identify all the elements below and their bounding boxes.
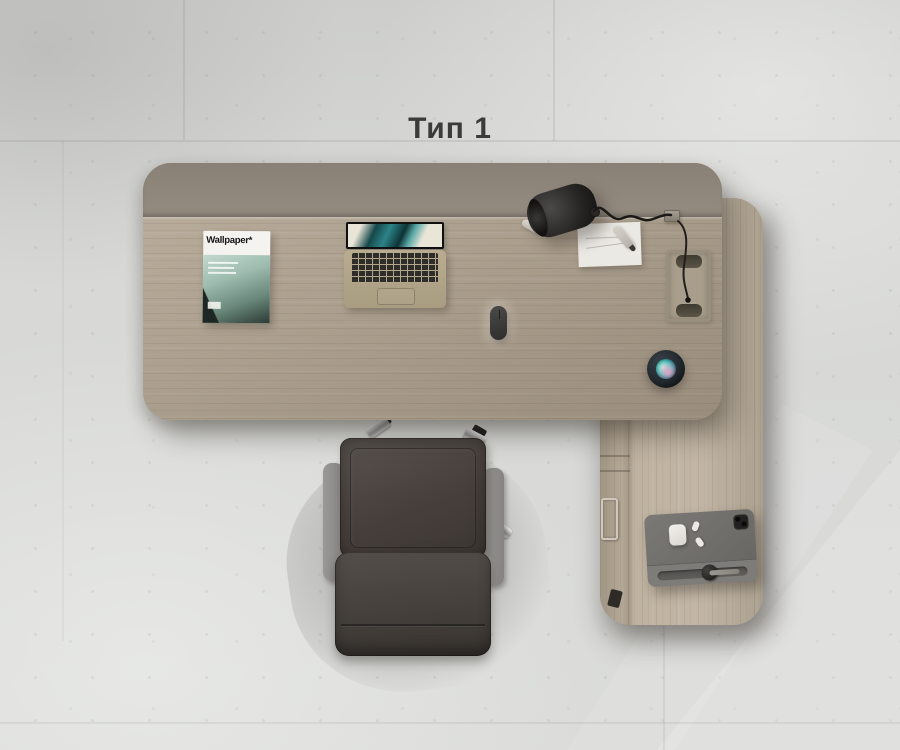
cover-text-line [208, 267, 234, 269]
airpods-case [669, 524, 687, 546]
smart-speaker [647, 350, 685, 388]
tablet-with-keyboard [644, 509, 758, 588]
magazine: Wallpaper* [203, 231, 271, 324]
airpod-bud [694, 536, 705, 548]
lamp-hub [590, 207, 600, 217]
drawer-seam [600, 455, 630, 457]
product-render-scene: Тип 1 [0, 0, 900, 750]
laptop-screen [346, 222, 444, 249]
cabinet-leg-notch [607, 589, 623, 608]
magazine-cover-image [203, 255, 271, 324]
laptop-keyboard [352, 253, 438, 283]
speaker-glow [656, 359, 676, 379]
drawer-seam [600, 470, 630, 472]
laptop-trackpad [377, 288, 415, 305]
drawer-handle [601, 498, 618, 540]
cover-badge [208, 302, 221, 309]
office-chair [318, 418, 513, 658]
apple-pencil [709, 569, 739, 576]
pencil-groove [657, 566, 747, 580]
magazine-masthead: Wallpaper* [206, 235, 267, 247]
airpod-bud [691, 521, 700, 532]
panel-edge [143, 217, 722, 220]
grommet-slot [676, 304, 702, 317]
page-title: Тип 1 [0, 112, 900, 146]
modesty-panel [143, 163, 722, 217]
chair-backrest [340, 438, 486, 558]
chair-seat [335, 552, 491, 656]
grommet-slot [676, 255, 702, 268]
tile-joint [62, 141, 64, 641]
cover-text-line [208, 272, 236, 274]
laptop-body [344, 250, 446, 308]
tile-joint [0, 722, 900, 724]
tablet-camera-icon [733, 514, 749, 530]
lamp-clamp [664, 210, 680, 222]
laptop [344, 222, 446, 308]
cover-text-line [208, 262, 238, 264]
tile-joint [663, 626, 665, 750]
computer-mouse [490, 306, 507, 340]
cable-grommet [666, 250, 711, 322]
